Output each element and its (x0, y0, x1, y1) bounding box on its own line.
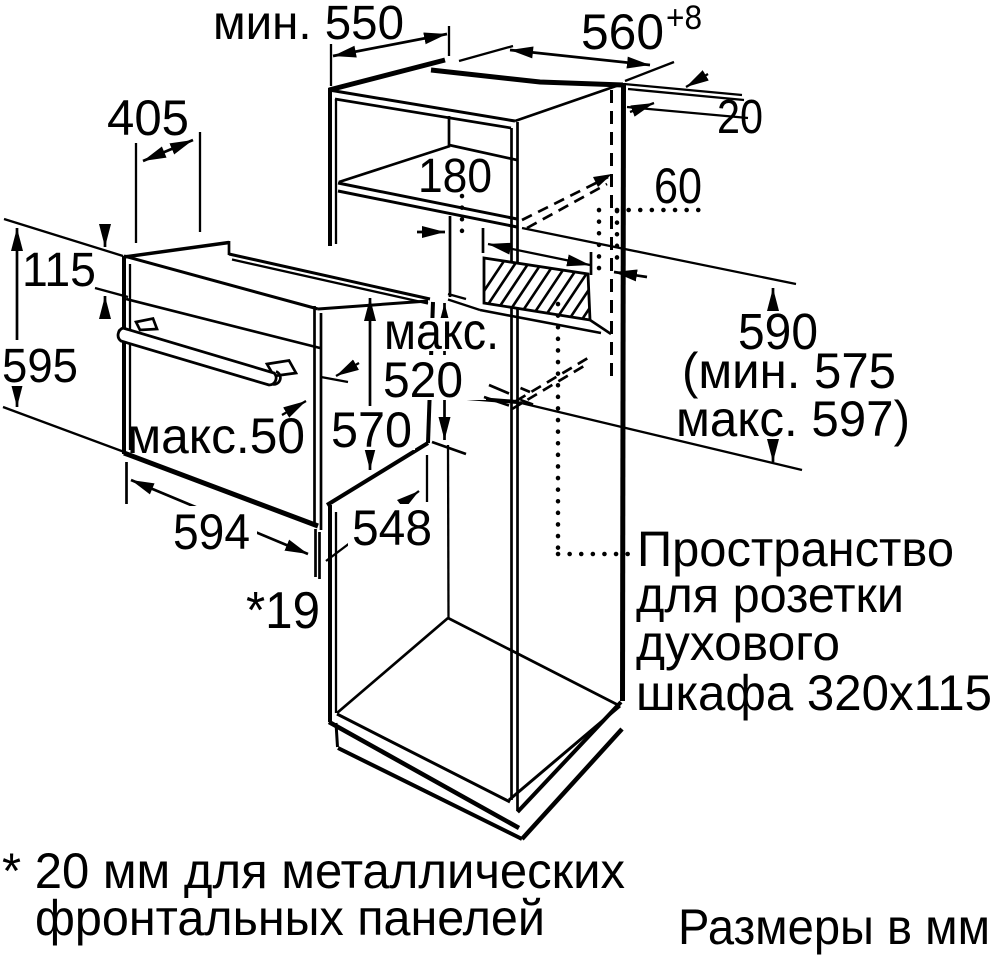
svg-text:20: 20 (717, 91, 763, 144)
svg-text:+8: +8 (666, 0, 702, 37)
svg-text:594: 594 (173, 504, 250, 560)
svg-text:115: 115 (22, 244, 96, 297)
svg-text:570: 570 (331, 402, 412, 458)
svg-text:405: 405 (107, 90, 189, 146)
svg-text:*19: *19 (246, 582, 320, 640)
svg-text:60: 60 (654, 158, 702, 214)
svg-text:548: 548 (352, 500, 432, 556)
svg-text:макс.50: макс.50 (127, 408, 305, 464)
svg-text:макс. 597): макс. 597) (676, 391, 910, 447)
svg-text:520: 520 (383, 352, 463, 408)
svg-text:180: 180 (418, 150, 492, 203)
svg-text:560: 560 (581, 4, 664, 60)
svg-text:шкафа 320x115: шкафа 320x115 (636, 665, 992, 721)
svg-text:595: 595 (2, 340, 78, 393)
svg-text:фронтальных панелей: фронтальных панелей (35, 890, 545, 946)
svg-text:Размеры в мм: Размеры в мм (678, 899, 990, 955)
svg-text:духового: духового (636, 615, 840, 671)
svg-text:мин. 550: мин. 550 (213, 0, 404, 50)
